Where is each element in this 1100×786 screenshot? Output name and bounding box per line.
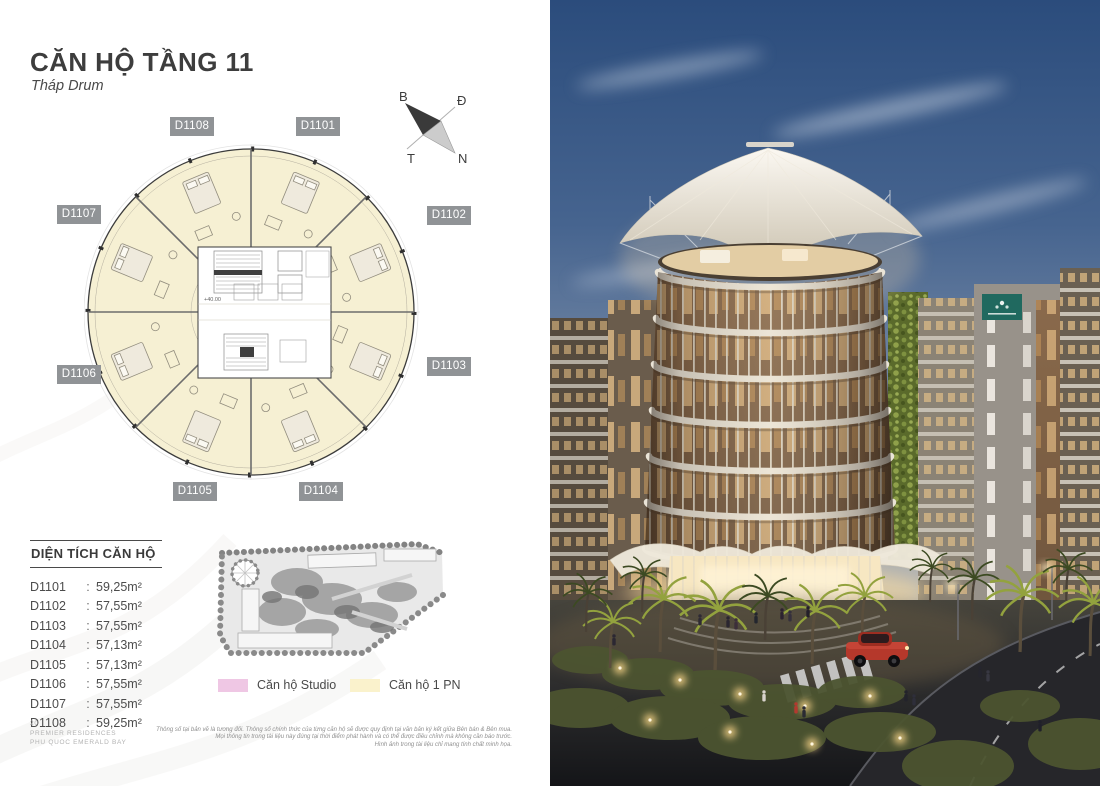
unit-tag-d1108: D1108 (170, 117, 214, 136)
unit-tag-d1105: D1105 (173, 482, 217, 501)
brand-footer: 20 PREMIER RESIDENCES PHU QUOC EMERALD B… (30, 719, 127, 748)
legend-item-studio: Căn hộ Studio (218, 678, 336, 692)
one-bedroom-color-swatch (350, 679, 380, 692)
compass-label-east: Đ (457, 93, 466, 108)
page-subtitle: Tháp Drum (31, 78, 104, 94)
table-row: D1104:57,13m² (30, 636, 162, 656)
disclaimer-text: Thông số tại bản vẽ là tương đối. Thông … (156, 727, 512, 749)
hotel-sign (982, 294, 1022, 320)
table-row: D1102:57,55m² (30, 597, 162, 617)
building-photo (550, 0, 1100, 786)
core-stairs-elevators: +40.00 (198, 247, 331, 378)
area-table: DIỆN TÍCH CĂN HỘ D1101:59,25m² D1102:57,… (30, 540, 162, 733)
unit-tag-d1104: D1104 (299, 482, 343, 501)
table-row: D1106:57,55m² (30, 675, 162, 695)
compass-label-south: N (458, 151, 467, 165)
brochure-page: CĂN HỘ TẦNG 11 Tháp Drum B Đ T N (0, 0, 1100, 786)
floor-plan-page: CĂN HỘ TẦNG 11 Tháp Drum B Đ T N (0, 0, 550, 786)
unit-tag-d1102: D1102 (427, 206, 471, 225)
unit-tag-d1103: D1103 (427, 357, 471, 376)
compass-label-north: B (399, 89, 408, 104)
brand-line: PREMIER RESIDENCES (30, 729, 127, 739)
unit-tag-d1107: D1107 (57, 205, 101, 224)
level-mark: +40.00 (204, 297, 221, 303)
table-row: D1103:57,55m² (30, 616, 162, 636)
page-number: 20 (30, 719, 127, 729)
table-row: D1105:57,13m² (30, 655, 162, 675)
legend-label: Căn hộ Studio (257, 678, 336, 692)
area-table-title: DIỆN TÍCH CĂN HỘ (30, 541, 162, 567)
legend-item-1pn: Căn hộ 1 PN (350, 678, 461, 692)
studio-color-swatch (218, 679, 248, 692)
floor-plan-drawing: +40.00 (84, 144, 420, 480)
brand-line: PHU QUOC EMERALD BAY (30, 738, 127, 748)
unit-tag-d1101: D1101 (296, 117, 340, 136)
page-title: CĂN HỘ TẦNG 11 (30, 47, 254, 78)
legend-label: Căn hộ 1 PN (389, 678, 461, 692)
table-row: D1101:59,25m² (30, 577, 162, 597)
unit-tag-d1106: D1106 (57, 365, 101, 384)
table-row: D1107:57,55m² (30, 694, 162, 714)
site-plan-map (212, 537, 450, 665)
drum-tower-marker (232, 560, 258, 586)
